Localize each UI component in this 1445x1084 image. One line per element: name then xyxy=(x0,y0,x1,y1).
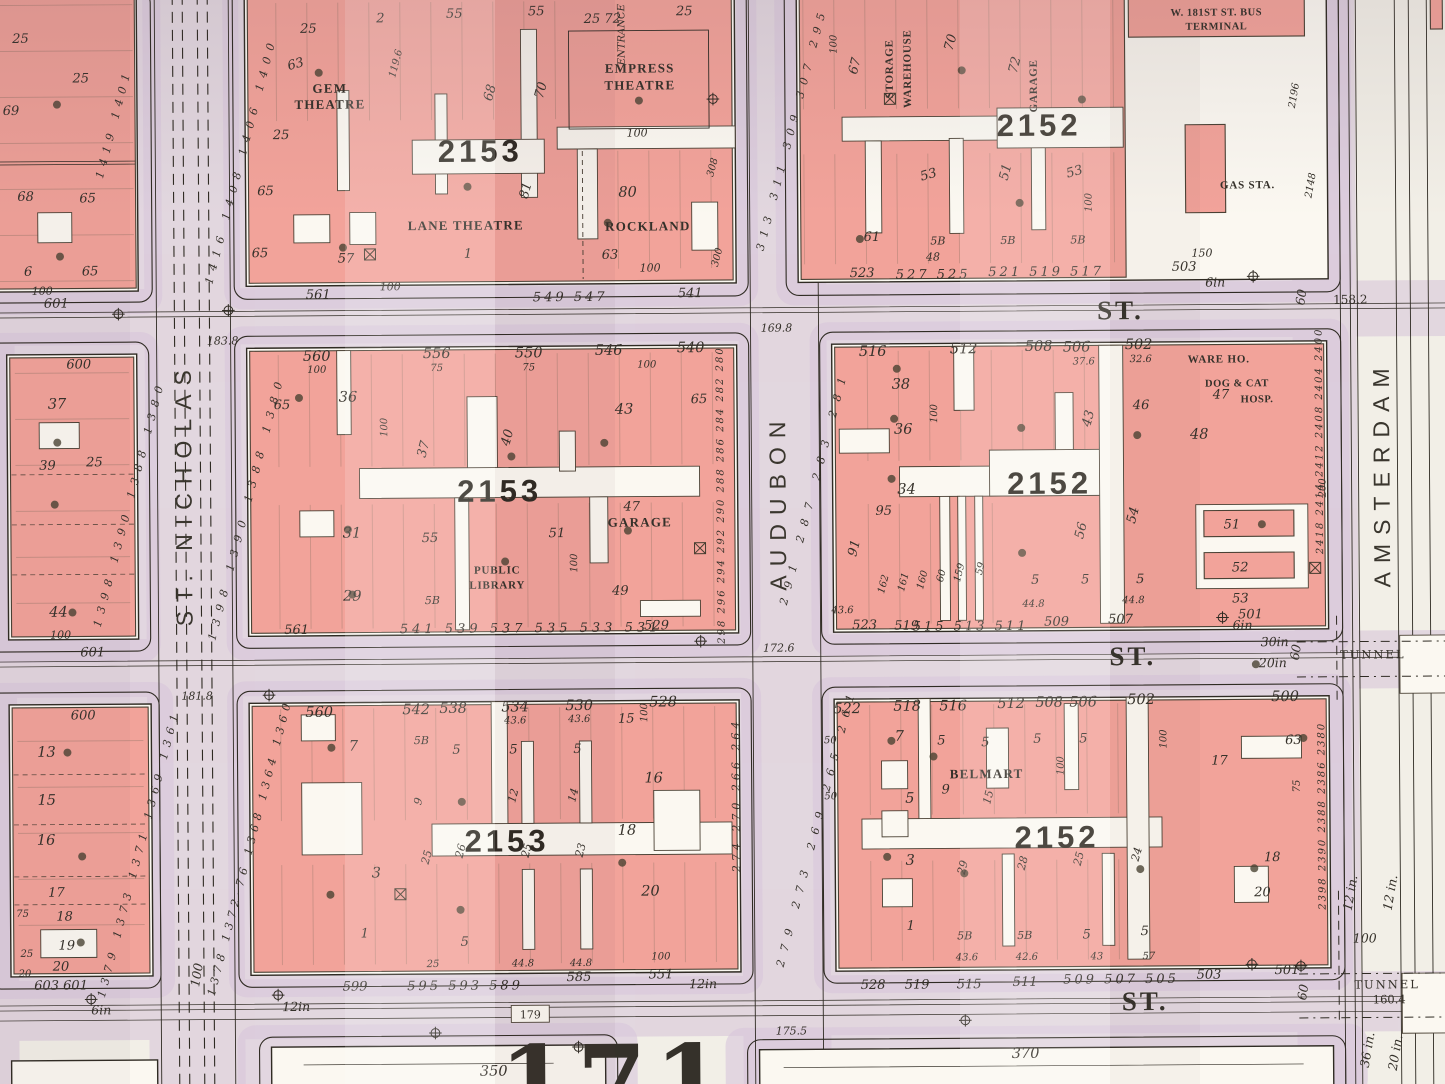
atlas-map-page: 25 69 25 68 65 6 65 1419 1401 100 601 2 xyxy=(0,0,1445,1084)
map-canvas[interactable]: 25 69 25 68 65 6 65 1419 1401 100 601 2 xyxy=(0,0,1445,1084)
scan-overlays xyxy=(0,0,1445,1084)
